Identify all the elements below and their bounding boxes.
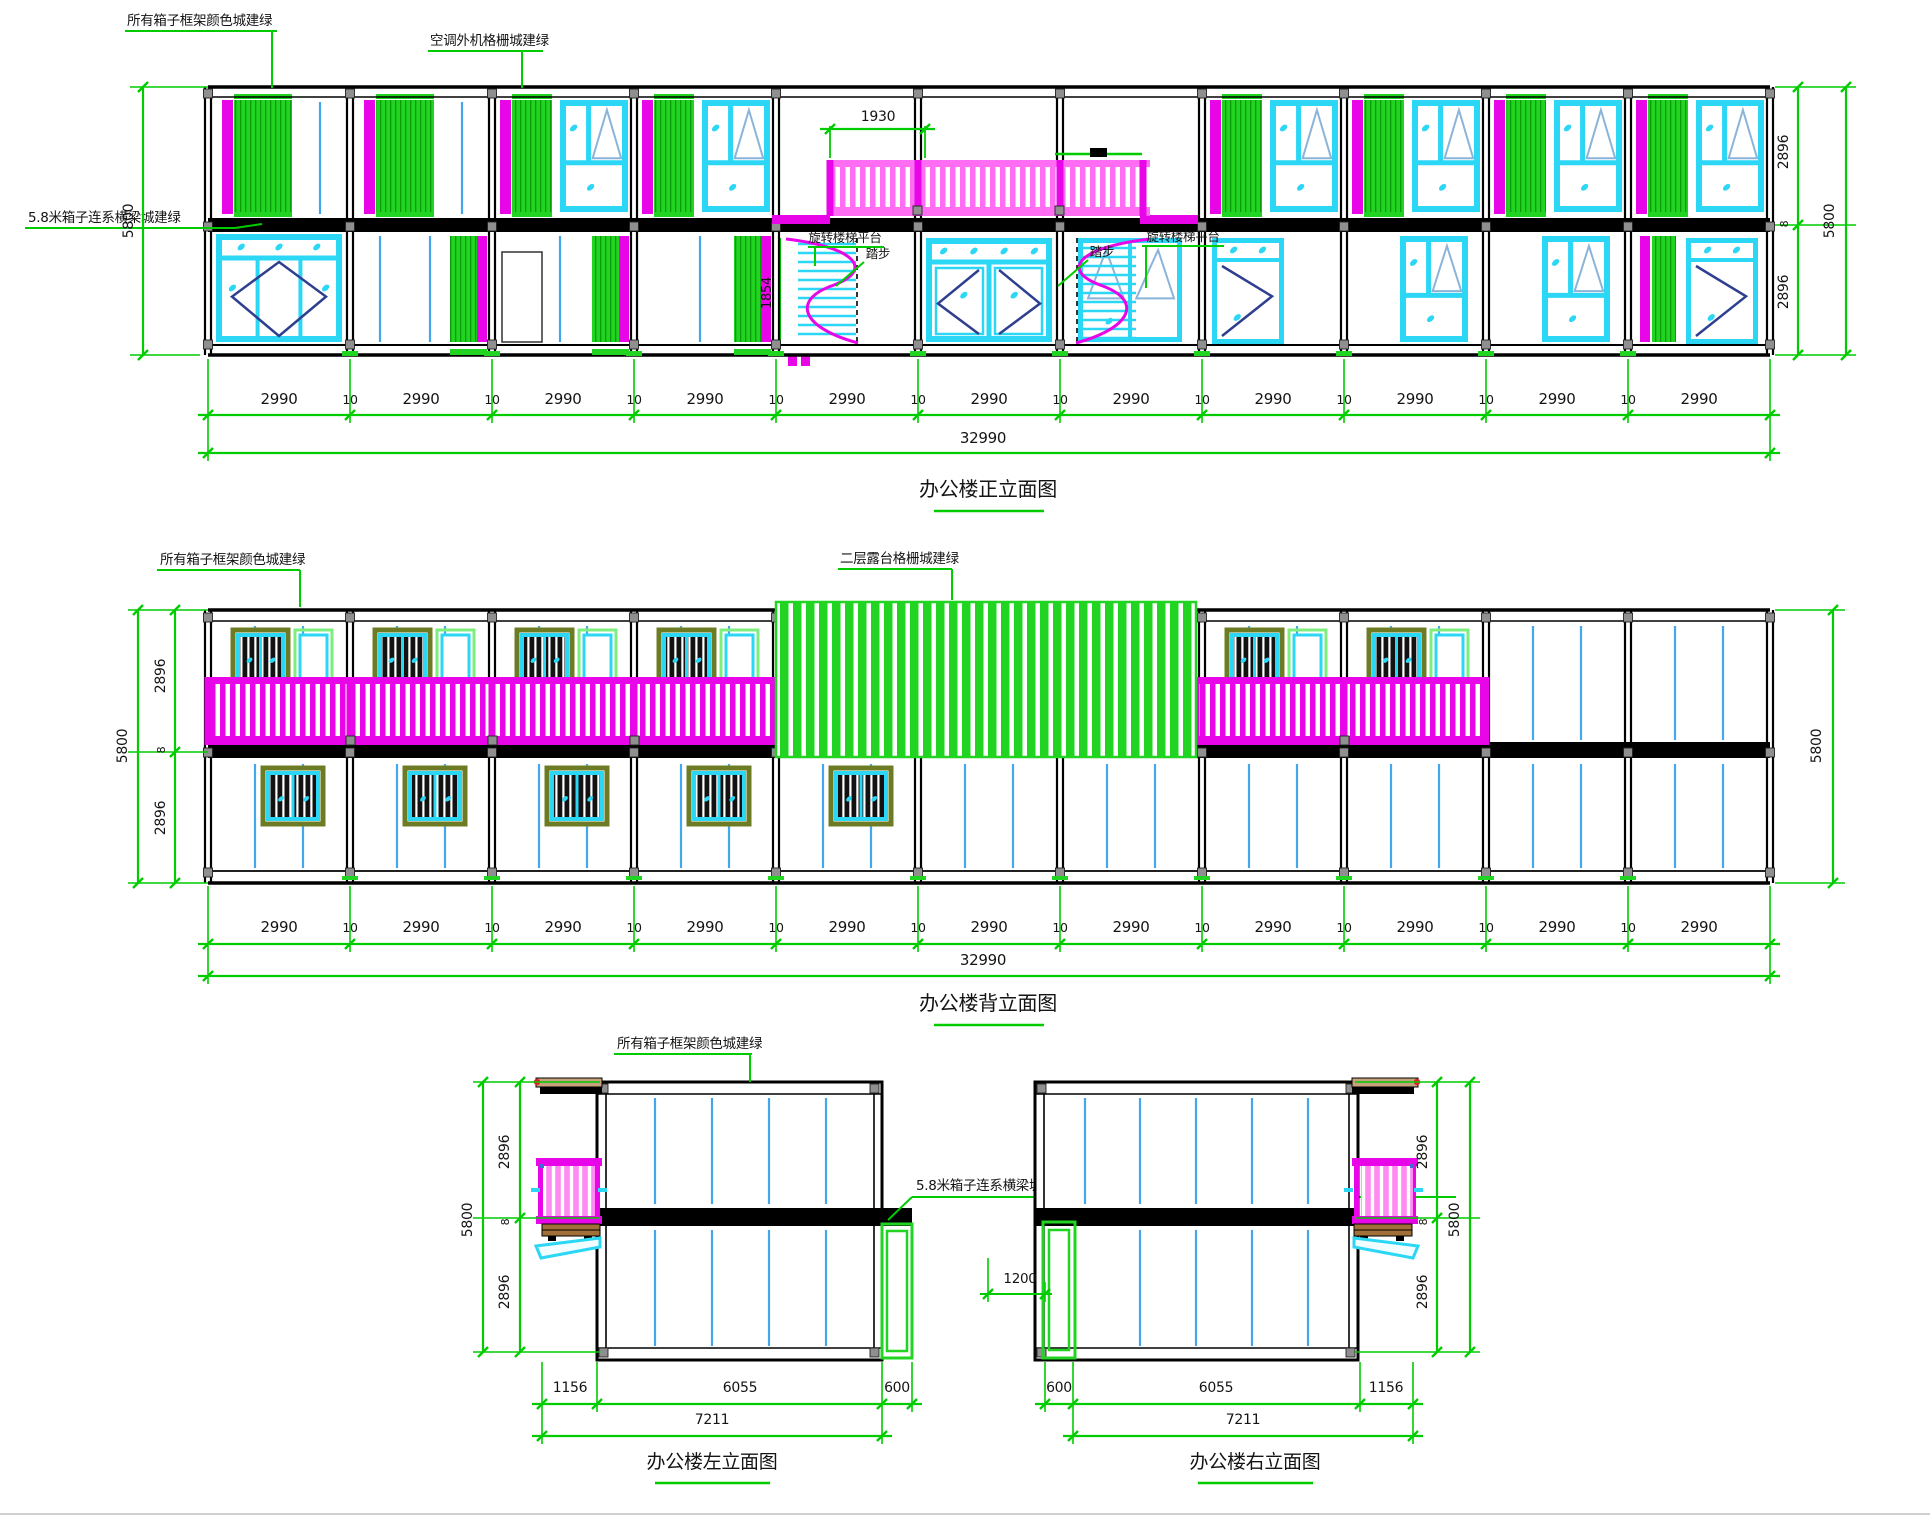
dim-label: 5.8米箱子连系横梁城建绿 (28, 210, 181, 226)
dim-label: 7211 (695, 1412, 729, 1428)
dim-label: 2990 (1255, 390, 1292, 408)
dim-label: 2896 (1776, 134, 1792, 169)
dim-label: 10 (1620, 392, 1636, 407)
dim-label: 2896 (1776, 274, 1792, 309)
dim-label: 2896 (1415, 1134, 1431, 1169)
dim-label: 2990 (1255, 918, 1292, 936)
dim-label: 2990 (971, 918, 1008, 936)
dim-label: 5800 (1822, 204, 1838, 238)
dim-label: 10 (484, 392, 500, 407)
dim-label: 10 (1336, 392, 1352, 407)
elevation-drawing-sheet: 18541930旋转楼梯平台踏步踏步旋转楼梯平台所有箱子框架颜色城建绿空调外机格… (0, 0, 1930, 1518)
dim-label: 10 (1052, 920, 1068, 935)
dim-label: 1156 (553, 1380, 588, 1396)
dim-label: 10 (768, 392, 784, 407)
dim-label: 5800 (460, 1203, 476, 1237)
dim-label: 踏步 (866, 246, 890, 261)
dim-label: 10 (342, 920, 358, 935)
dim-label: 8 (1417, 1218, 1430, 1225)
dim-label: 8 (1778, 220, 1791, 227)
dim-label: 2896 (1415, 1274, 1431, 1309)
drawing-canvas: 18541930旋转楼梯平台踏步踏步旋转楼梯平台所有箱子框架颜色城建绿空调外机格… (0, 0, 1930, 1518)
view-title: 办公楼正立面图 (919, 477, 1057, 501)
dim-label: 7211 (1226, 1412, 1260, 1428)
dim-label: 2990 (687, 918, 724, 936)
dim-label: 6055 (723, 1380, 757, 1396)
dim-label: 2990 (829, 390, 866, 408)
dim-label: 10 (342, 392, 358, 407)
dim-label: 2896 (153, 658, 169, 693)
dim-label: 旋转楼梯平台 (1146, 229, 1219, 244)
dim-label: 10 (910, 392, 926, 407)
dim-label: 2990 (1113, 918, 1150, 936)
view-title: 办公楼右立面图 (1190, 1451, 1321, 1473)
dim-label: 2990 (829, 918, 866, 936)
dim-label: 600 (1046, 1380, 1072, 1396)
dim-label: 2990 (261, 390, 298, 408)
dim-label: 空调外机格栅城建绿 (430, 33, 550, 49)
dim-label: 10 (1052, 392, 1068, 407)
dim-label: 5800 (115, 729, 131, 763)
view-title: 办公楼背立面图 (919, 991, 1057, 1015)
dim-label: 10 (1194, 920, 1210, 935)
dim-label: 2990 (1113, 390, 1150, 408)
dim-label: 10 (1620, 920, 1636, 935)
dim-label: 32990 (960, 429, 1006, 447)
dim-label: 10 (484, 920, 500, 935)
dim-label: 1200 (1003, 1271, 1036, 1287)
dim-label: 所有箱子框架颜色城建绿 (617, 1035, 763, 1052)
dim-label: 2990 (1397, 918, 1434, 936)
dim-label: 10 (910, 920, 926, 935)
dim-label: 5800 (1447, 1203, 1463, 1237)
dim-label: 2990 (1681, 918, 1718, 936)
dim-label: 2990 (545, 918, 582, 936)
dim-label: 所有箱子框架颜色城建绿 (127, 12, 273, 29)
dim-label: 二层露台格栅城建绿 (840, 551, 960, 567)
dim-label: 所有箱子框架颜色城建绿 (160, 551, 306, 568)
dim-label: 8 (499, 1218, 512, 1225)
dim-label: 10 (1478, 392, 1494, 407)
dim-label: 旋转楼梯平台 (808, 230, 881, 245)
view-title: 办公楼左立面图 (647, 1451, 778, 1473)
dim-label: 踏步 (1090, 244, 1114, 259)
dim-label: 2990 (1681, 390, 1718, 408)
dim-label: 2990 (403, 390, 440, 408)
dim-label: 10 (1336, 920, 1352, 935)
dim-label: 8 (155, 746, 168, 753)
dim-label: 2990 (545, 390, 582, 408)
dim-label: 2896 (153, 800, 169, 835)
dim-label: 10 (1194, 392, 1210, 407)
dim-label: 2990 (1539, 918, 1576, 936)
front-elevation-view: 18541930旋转楼梯平台踏步踏步旋转楼梯平台所有箱子框架颜色城建绿空调外机格… (25, 12, 1856, 511)
dim-label: 6055 (1199, 1380, 1233, 1396)
dim-label: 10 (768, 920, 784, 935)
dim-label: 2990 (261, 918, 298, 936)
dim-label: 2990 (971, 390, 1008, 408)
dim-label: 2990 (1397, 390, 1434, 408)
dim-label: 2990 (403, 918, 440, 936)
dim-label: 10 (1478, 920, 1494, 935)
dim-label: 5800 (1809, 729, 1825, 763)
dim-label: 2896 (497, 1274, 513, 1309)
dim-label: 1156 (1369, 1380, 1404, 1396)
dim-label: 600 (884, 1380, 910, 1396)
right-elevation-view: 12002896828965800600605511567211办公楼右立面图 (980, 1077, 1480, 1483)
back-elevation-view: 所有箱子框架颜色城建绿二层露台格栅城建绿28968289658005800299… (115, 551, 1845, 1025)
dim-label: 5800 (121, 204, 137, 238)
dim-label: 10 (626, 392, 642, 407)
dim-label: 2990 (1539, 390, 1576, 408)
dim-label: 2990 (687, 390, 724, 408)
dim-label: 1930 (861, 109, 895, 125)
dim-label: 32990 (960, 951, 1006, 969)
dim-label: 2896 (497, 1134, 513, 1169)
dim-label: 10 (626, 920, 642, 935)
